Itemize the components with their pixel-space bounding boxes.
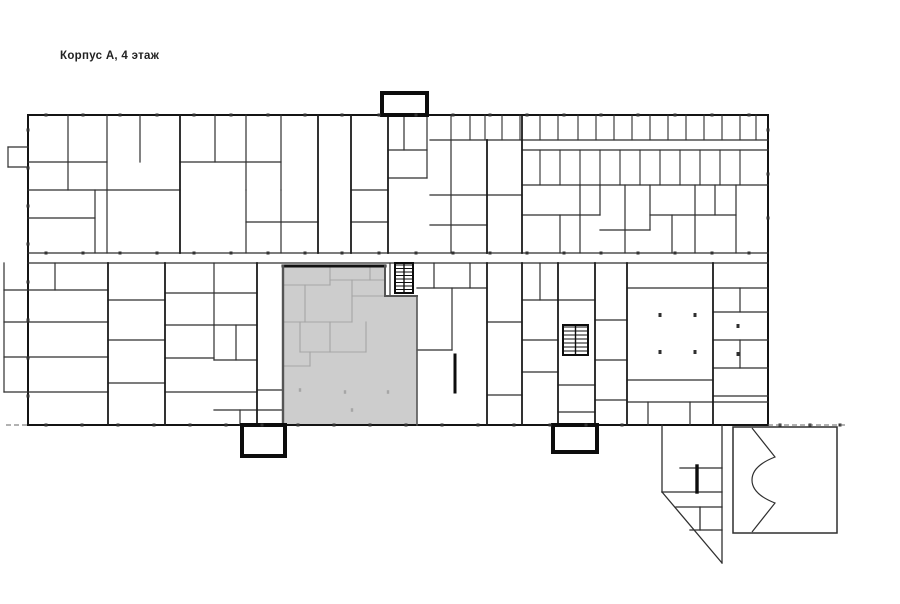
stair-core xyxy=(242,425,285,456)
page-root: Корпус А, 4 этаж xyxy=(0,0,900,604)
floor-plan xyxy=(0,0,900,604)
annex-layer xyxy=(662,425,837,563)
stair-core xyxy=(382,93,427,115)
stair-core xyxy=(553,425,597,452)
lecture-hall-curved-wall xyxy=(752,428,775,532)
lecture-hall xyxy=(733,427,837,533)
